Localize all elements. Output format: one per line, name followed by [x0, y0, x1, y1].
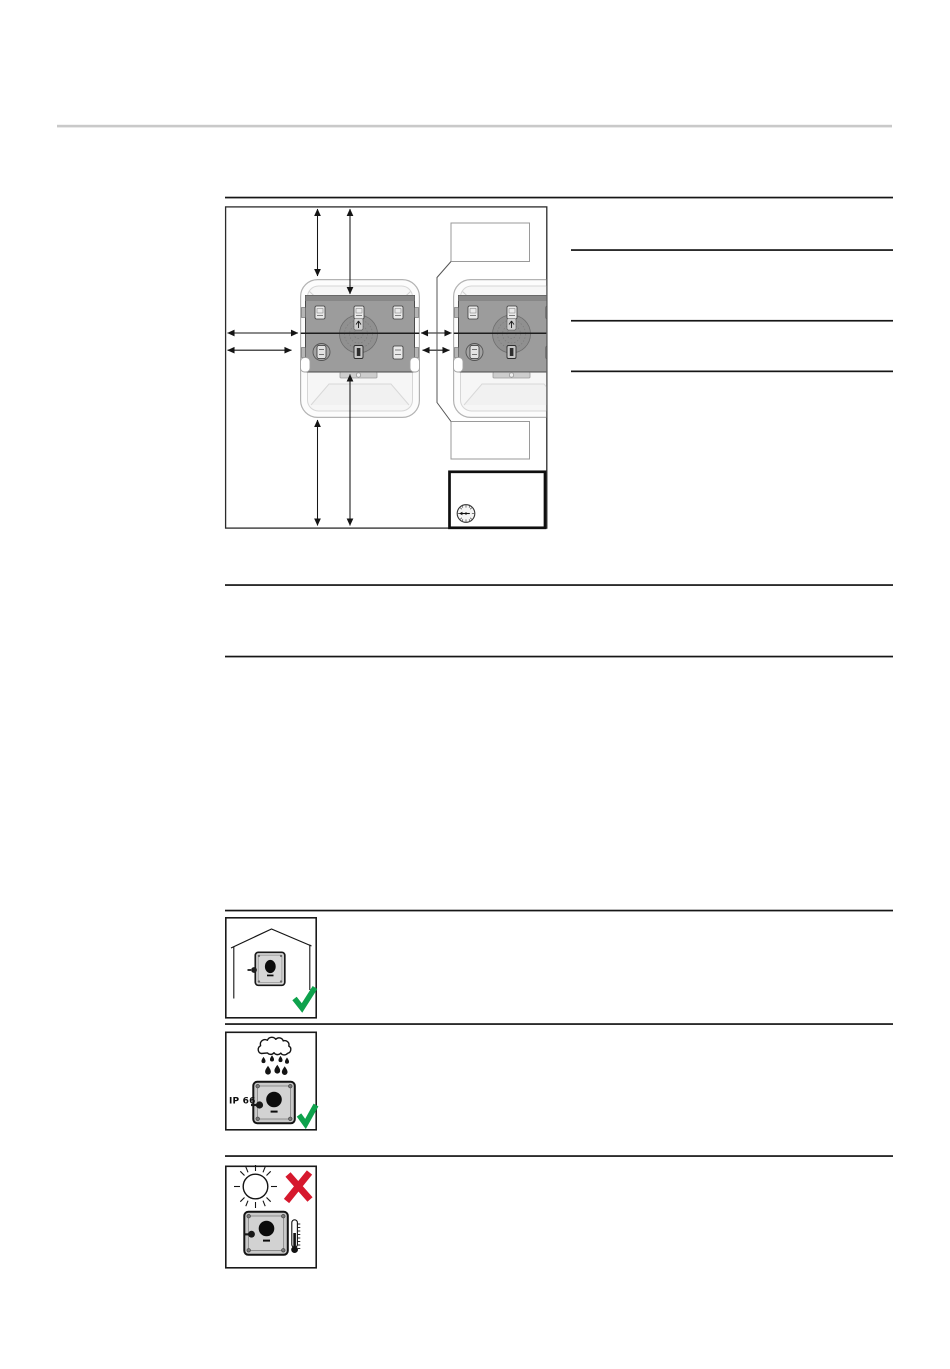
callout-leader-line [437, 262, 451, 422]
manual-page: IP 66 [0, 0, 950, 1369]
callout-box-top [451, 223, 530, 262]
row3-rule [225, 1155, 893, 1157]
medium-device-icon [244, 1212, 288, 1255]
figure-top-rule [225, 197, 893, 199]
dial-gauge-icon [457, 505, 475, 523]
mid-table-rule-top [225, 584, 893, 586]
rain-cloud-device-icon: IP 66 [226, 1032, 316, 1130]
ip-rating-label: IP 66 [229, 1097, 256, 1107]
row2-rule [225, 1023, 893, 1025]
callout-box-bottom [451, 422, 530, 460]
device-left [301, 280, 420, 418]
right-column-rule-1 [571, 249, 893, 251]
row1-rule [225, 910, 893, 912]
mid-table-rule-bottom [225, 656, 893, 658]
medium-device-icon [251, 1082, 295, 1124]
device-indoors-house-icon [226, 918, 316, 1018]
right-column-rule-3 [571, 371, 893, 373]
direct-sunlight-device-icon [226, 1165, 316, 1268]
header-divider [57, 125, 892, 128]
page-graphics: IP 66 [0, 0, 950, 1369]
right-column-rule-2 [571, 320, 893, 322]
device-right [454, 280, 573, 418]
